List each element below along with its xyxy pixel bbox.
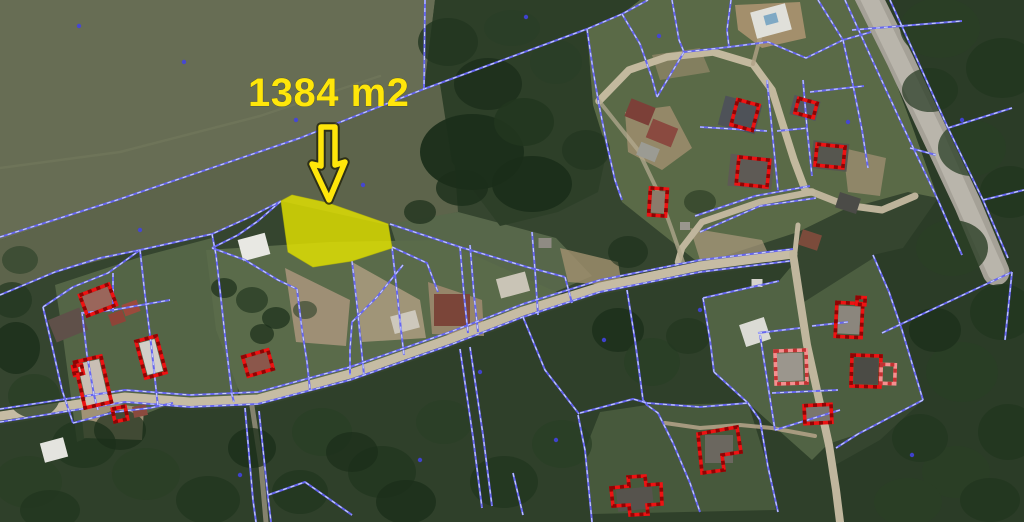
building-roof [777, 353, 804, 382]
survey-point-marker [77, 24, 81, 28]
tree-canopy [2, 246, 38, 274]
concrete-pad [539, 238, 552, 248]
tree-canopy [436, 170, 488, 206]
survey-point-marker [846, 120, 850, 124]
tree-canopy [250, 324, 274, 344]
survey-point-marker [554, 438, 558, 442]
survey-point-marker [910, 453, 914, 457]
tree-canopy [960, 478, 1020, 522]
tree-canopy [416, 400, 472, 444]
tree-canopy [418, 18, 478, 66]
aerial-map-canvas: 1384 m2 [0, 0, 1024, 522]
survey-point-marker [138, 228, 142, 232]
building-roof [705, 435, 733, 463]
survey-point-marker [657, 34, 661, 38]
concrete-pad [680, 222, 690, 230]
survey-point-marker [361, 183, 365, 187]
tree-canopy [909, 308, 961, 352]
building-roof [651, 191, 666, 214]
tree-canopy [112, 448, 180, 500]
survey-point-marker [602, 338, 606, 342]
tree-canopy [666, 318, 710, 354]
area-label: 1384 m2 [248, 71, 409, 115]
tree-canopy [376, 480, 436, 522]
tree-canopy [404, 200, 436, 224]
survey-point-marker [238, 473, 242, 477]
tree-canopy [176, 476, 240, 522]
tree-canopy [8, 374, 60, 418]
tree-canopy [211, 278, 237, 298]
survey-point-marker [294, 118, 298, 122]
tree-canopy [484, 10, 540, 46]
cadastral-map-screenshot: 1384 m2 [0, 0, 1024, 522]
building-roof [837, 305, 860, 334]
tree-canopy [892, 414, 948, 462]
survey-point-marker [478, 370, 482, 374]
tree-canopy [562, 130, 610, 170]
survey-point-marker [418, 458, 422, 462]
connector-road [795, 225, 798, 252]
tree-canopy [492, 156, 572, 212]
aerial-terrain-layer [0, 0, 1024, 522]
survey-point-marker [182, 60, 186, 64]
tree-canopy [494, 98, 554, 146]
tree-canopy [916, 220, 988, 276]
tree-canopy [293, 301, 317, 319]
survey-point-marker [698, 308, 702, 312]
survey-point-marker [960, 118, 964, 122]
tree-canopy [326, 432, 378, 472]
tree-canopy [608, 236, 648, 268]
survey-point-marker [524, 15, 528, 19]
building-roof [854, 358, 879, 385]
tree-canopy [236, 287, 268, 313]
tree-canopy [228, 428, 276, 468]
